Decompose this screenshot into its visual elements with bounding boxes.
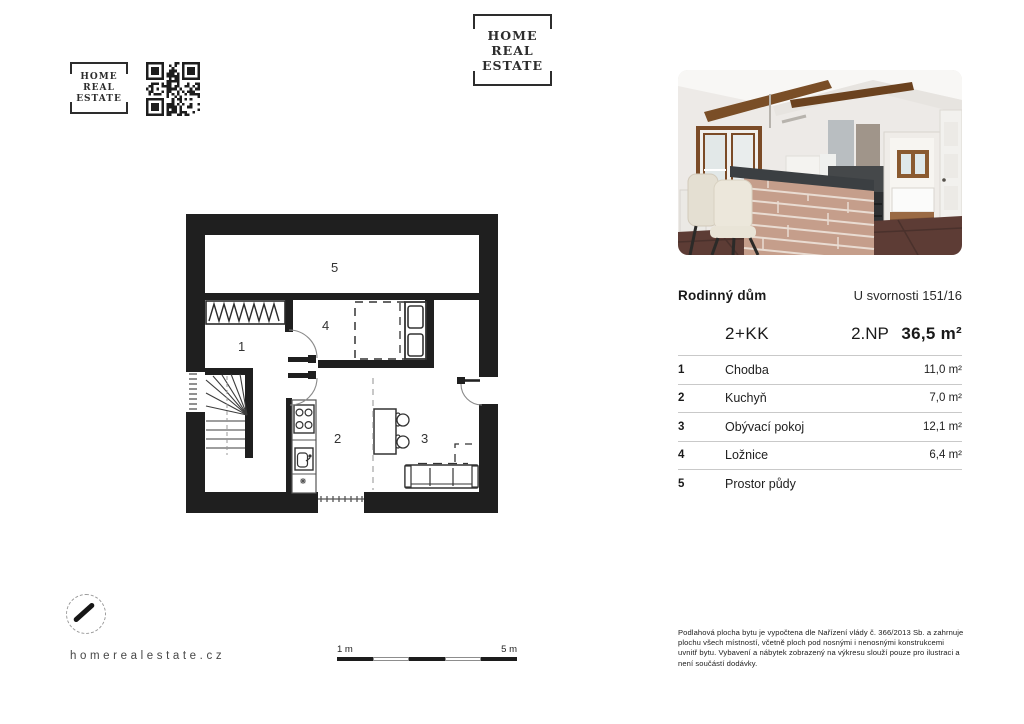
room-number: 5 bbox=[678, 478, 725, 490]
pillow bbox=[408, 306, 423, 328]
plan-sofa bbox=[405, 444, 478, 488]
room-name: Kuchyň bbox=[725, 391, 929, 405]
plan-bed bbox=[355, 302, 426, 359]
table-row: 1 Chodba 11,0 m² bbox=[678, 356, 962, 385]
room-name: Prostor půdy bbox=[725, 477, 962, 491]
plan-label-3: 3 bbox=[421, 431, 428, 446]
room-number: 1 bbox=[678, 364, 725, 376]
qr-code-icon bbox=[145, 62, 201, 116]
plan-kitchen-counter bbox=[292, 400, 316, 493]
plan-label-5: 5 bbox=[331, 260, 338, 275]
plan-window-bottom bbox=[318, 496, 364, 502]
room-name: Obývací pokoj bbox=[725, 420, 923, 434]
property-type: Rodinný dům bbox=[678, 288, 766, 303]
scale-track bbox=[337, 657, 517, 661]
room-number: 4 bbox=[678, 449, 725, 461]
vent-icon bbox=[300, 478, 306, 484]
brand-logo-text: HOME REAL ESTATE bbox=[473, 14, 552, 73]
room-table: 1 Chodba 11,0 m² 2 Kuchyň 7,0 m² 3 Obýva… bbox=[678, 355, 962, 498]
room-area: 11,0 m² bbox=[924, 364, 962, 376]
property-info-panel: Rodinný dům U svornosti 151/16 2+KK 2.NP… bbox=[678, 288, 962, 498]
scale-bar: 1 m 5 m bbox=[337, 644, 517, 661]
scale-start-label: 1 m bbox=[337, 644, 353, 655]
property-layout: 2+KK bbox=[725, 324, 769, 344]
room-name: Ložnice bbox=[725, 448, 929, 462]
property-address: U svornosti 151/16 bbox=[854, 288, 962, 303]
room-number: 3 bbox=[678, 421, 725, 433]
stove-icon bbox=[294, 405, 314, 433]
room-area: 12,1 m² bbox=[923, 421, 962, 433]
floor-plan: 5 1 4 2 3 bbox=[180, 210, 502, 516]
plan-label-1: 1 bbox=[238, 339, 245, 354]
property-photo bbox=[678, 70, 962, 255]
table-row: 2 Kuchyň 7,0 m² bbox=[678, 385, 962, 414]
plan-dining-table bbox=[374, 409, 409, 454]
room-number: 2 bbox=[678, 392, 725, 404]
room-area: 7,0 m² bbox=[929, 392, 962, 404]
plan-label-2: 2 bbox=[334, 431, 341, 446]
pillow bbox=[408, 334, 423, 356]
compass-needle bbox=[73, 602, 96, 623]
brand-logo-main: HOME REAL ESTATE bbox=[473, 14, 552, 86]
disclaimer-text: Podlahová plocha bytu je vypočtena dle N… bbox=[678, 628, 964, 669]
property-total-area: 36,5 m² bbox=[901, 324, 962, 343]
website-url: homerealestate.cz bbox=[70, 650, 225, 662]
brand-logo-small: HOME REAL ESTATE bbox=[70, 62, 128, 114]
plan-label-4: 4 bbox=[322, 318, 329, 333]
table-row: 4 Ložnice 6,4 m² bbox=[678, 442, 962, 471]
scale-end-label: 5 m bbox=[501, 644, 517, 655]
room-name: Chodba bbox=[725, 363, 924, 377]
plan-window-left bbox=[189, 374, 197, 409]
table-row: 3 Obývací pokoj 12,1 m² bbox=[678, 413, 962, 442]
compass-icon bbox=[66, 594, 106, 634]
brand-logo-text: HOME REAL ESTATE bbox=[70, 62, 128, 105]
plan-stairs bbox=[206, 374, 247, 455]
table-row: 5 Prostor půdy bbox=[678, 470, 962, 498]
plan-wardrobe bbox=[206, 301, 285, 324]
sink-icon bbox=[295, 448, 313, 470]
property-floor: 2.NP bbox=[851, 324, 889, 343]
room-area: 6,4 m² bbox=[929, 449, 962, 461]
